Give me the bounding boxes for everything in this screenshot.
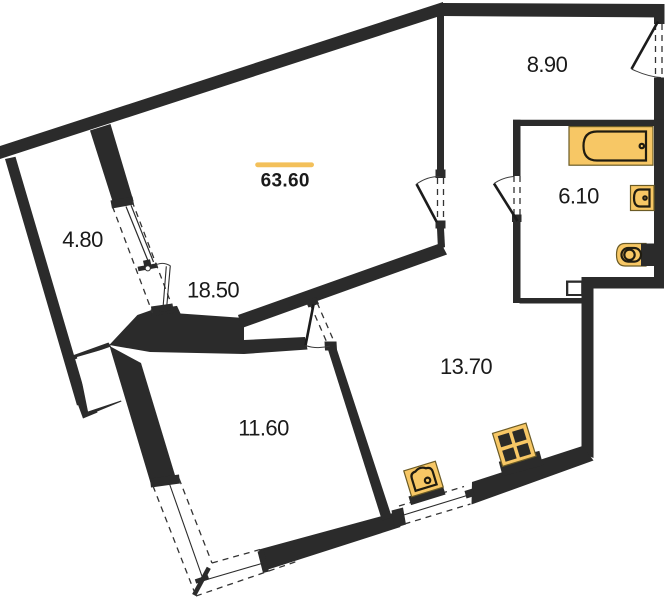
svg-text:13.70: 13.70 [440,354,492,379]
svg-text:18.50: 18.50 [187,278,239,303]
svg-text:63.60: 63.60 [261,171,310,192]
svg-text:6.10: 6.10 [558,184,599,209]
svg-text:4.80: 4.80 [62,227,103,252]
svg-text:8.90: 8.90 [527,52,568,77]
svg-text:11.60: 11.60 [238,416,289,441]
